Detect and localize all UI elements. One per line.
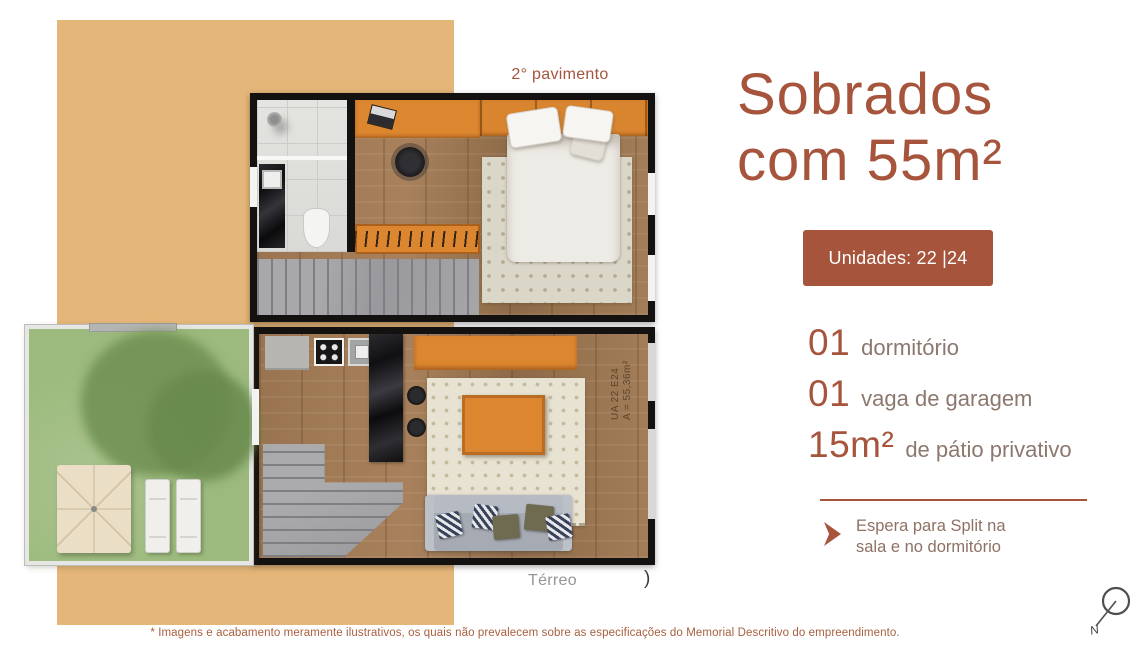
private-patio [25, 325, 253, 565]
shower-head [267, 112, 282, 127]
units-badge: Unidades: 22 |24 [803, 230, 993, 286]
section-divider [820, 499, 1087, 501]
stool [407, 418, 426, 437]
sideboard [414, 336, 577, 370]
coffee-table [462, 395, 545, 455]
office-chair [395, 147, 425, 177]
window-opening [648, 255, 655, 301]
split-note-line-2: sala e no dormitório [856, 537, 1006, 558]
feature-value: 01 [808, 322, 850, 364]
interior-wall [347, 100, 355, 252]
ground-plan-interior: UA 22 E24 A = 55,36m² [259, 334, 648, 558]
feature-item: 01 dormitório [808, 322, 1138, 364]
title-line-1: Sobrados [737, 62, 1137, 128]
stove [314, 338, 344, 366]
ground-plan-label: Térreo [460, 572, 645, 590]
upper-plan-interior [257, 100, 648, 315]
window-opening [648, 429, 655, 519]
bed-pillow [562, 105, 614, 143]
sofa-pillow [492, 514, 520, 540]
staircase-upper [257, 259, 479, 315]
window-opening [250, 167, 257, 207]
feature-list: 01 dormitório 01 vaga de garagem 15m² de… [808, 322, 1138, 475]
toilet [303, 208, 330, 248]
unit-area: A = 55,36m² [622, 404, 634, 420]
split-note-text: Espera para Split na sala e no dormitóri… [856, 516, 1006, 558]
tree-canopy [147, 371, 259, 481]
book-shelf [355, 224, 480, 254]
page-title: Sobrados com 55m² [737, 62, 1137, 194]
feature-label: dormitório [861, 335, 959, 361]
unit-id: UA 22 E24 [610, 404, 622, 420]
chevron-right-icon [824, 522, 841, 546]
floor-plan-ground: UA 22 E24 A = 55,36m² [252, 327, 655, 565]
floor-plan-upper [250, 93, 655, 322]
sun-lounger [145, 479, 170, 553]
feature-item: 15m² de pátio privativo [808, 424, 1138, 466]
marketing-slide: UA 22 E24 A = 55,36m² 2° pavimento Térre… [0, 0, 1144, 650]
window-opening [648, 343, 655, 401]
title-line-2: com 55m² [737, 128, 1137, 194]
north-label: N [1088, 622, 1100, 638]
kitchen-counter [265, 336, 309, 370]
split-note-line-1: Espera para Split na [856, 516, 1006, 537]
sofa [425, 495, 572, 551]
shower-glass [257, 156, 347, 160]
disclaimer-text: * Imagens e acabamento meramente ilustra… [20, 627, 1030, 639]
sofa-pillow [545, 513, 573, 541]
door-opening [252, 389, 259, 445]
feature-item: 01 vaga de garagem [808, 373, 1138, 415]
kitchen-island [369, 334, 403, 462]
cropped-mark: ) [644, 568, 650, 590]
split-note: Espera para Split na sala e no dormitóri… [824, 516, 1124, 558]
bathroom-sink [262, 170, 282, 189]
north-arrow-icon: N [1082, 582, 1136, 640]
feature-label: vaga de garagem [861, 386, 1032, 412]
sofa-pillow [435, 511, 463, 539]
sun-lounger [176, 479, 201, 553]
window-opening [648, 173, 655, 215]
stool [407, 386, 426, 405]
feature-label: de pátio privativo [905, 437, 1071, 463]
feature-value: 01 [808, 373, 850, 415]
bed [507, 110, 620, 262]
unit-area-note: UA 22 E24 A = 55,36m² [610, 404, 634, 420]
units-badge-label: Unidades: 22 |24 [829, 248, 968, 269]
bathroom-area [257, 100, 347, 252]
patio-umbrella [57, 465, 131, 553]
feature-value: 15m² [808, 424, 894, 466]
upper-plan-label: 2° pavimento [460, 66, 660, 84]
